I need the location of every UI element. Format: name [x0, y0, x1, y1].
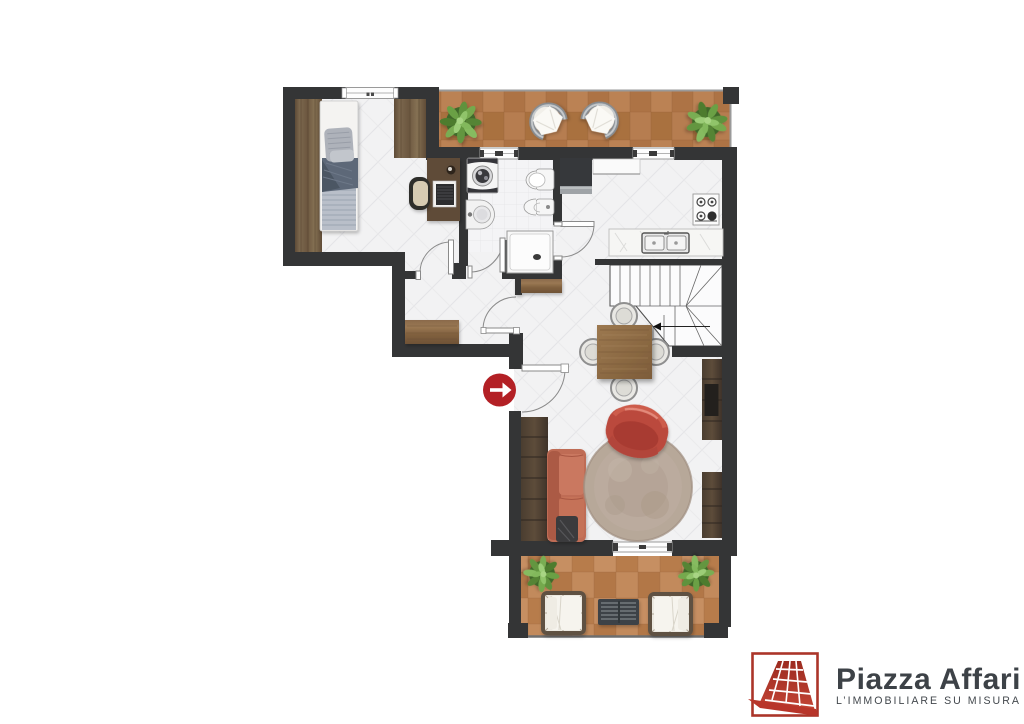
- svg-text:Piazza Affari: Piazza Affari: [836, 663, 1021, 696]
- svg-text:L’IMMOBILIARE SU MISURA: L’IMMOBILIARE SU MISURA: [836, 695, 1021, 707]
